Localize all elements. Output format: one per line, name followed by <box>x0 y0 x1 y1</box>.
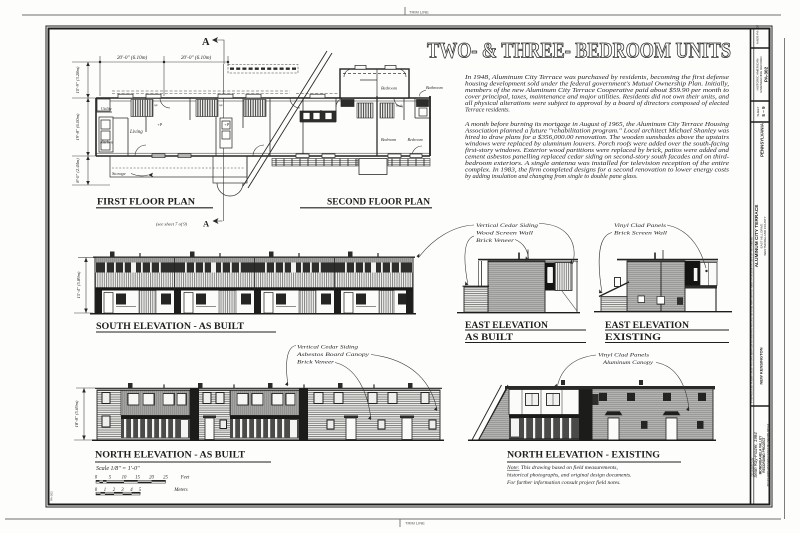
svg-text:WESTMORELAND COUNTY: WESTMORELAND COUNTY <box>763 216 767 255</box>
svg-text:20'-0" (6.10m): 20'-0" (6.10m) <box>117 54 148 61</box>
svg-text:25: 25 <box>163 476 168 481</box>
svg-text:Bedroom: Bedroom <box>381 86 397 91</box>
svg-text:NEW KENSINGTON: NEW KENSINGTON <box>759 347 764 384</box>
svg-text:NORTH ELEVATION - EXISTING: NORTH ELEVATION - EXISTING <box>507 451 661 461</box>
svg-text:Wood Screen Wall: Wood Screen Wall <box>476 231 534 237</box>
svg-text:5 – 9: 5 – 9 <box>761 106 766 117</box>
svg-text:Brick Veneer: Brick Veneer <box>476 238 515 244</box>
svg-text:Scale 1/8" = 1'-0": Scale 1/8" = 1'-0" <box>96 466 140 472</box>
svg-text:TRIM LINE: TRIM LINE <box>409 10 429 15</box>
svg-text:RECORDING PROJECT: RECORDING PROJECT <box>762 437 766 472</box>
svg-text:+P: +P <box>157 122 163 127</box>
svg-text:Kitchen: Kitchen <box>99 140 113 145</box>
svg-text:Vinyl Clad Panels: Vinyl Clad Panels <box>614 223 666 229</box>
svg-text:AS BUILT: AS BUILT <box>465 333 514 343</box>
svg-text:Terrace residents.: Terrace residents. <box>465 106 510 113</box>
svg-text:20: 20 <box>149 476 154 481</box>
svg-text:A: A <box>202 37 210 48</box>
svg-text:8'-0" (2.44m): 8'-0" (2.44m) <box>75 158 80 183</box>
svg-text:10'-9" (3.28m): 10'-9" (3.28m) <box>75 66 80 93</box>
svg-text:+P: +P <box>317 109 323 114</box>
svg-text:by adding insulation and chang: by adding insulation and changing from s… <box>465 173 638 180</box>
svg-text:TWO- & THREE- BEDROOM UNITS: TWO- & THREE- BEDROOM UNITS <box>427 38 731 63</box>
svg-text:Bath: Bath <box>396 104 403 108</box>
svg-text:A: A <box>203 219 210 229</box>
svg-text:historical photographs, and or: historical photographs, and original des… <box>507 473 631 479</box>
svg-text:Brick Screen Wall: Brick Screen Wall <box>614 231 668 237</box>
svg-text:Bedroom: Bedroom <box>408 137 423 142</box>
svg-text:SOUTH ELEVATION - AS BUILT: SOUTH ELEVATION - AS BUILT <box>96 322 245 332</box>
svg-text:EXISTING: EXISTING <box>605 333 662 343</box>
svg-text:EAST ELEVATION: EAST ELEVATION <box>465 321 548 331</box>
svg-text:Vertical Cedar Siding: Vertical Cedar Siding <box>297 345 359 351</box>
svg-text:IF REPRODUCED, PLEASE CREDIT H: IF REPRODUCED, PLEASE CREDIT HISTORIC AM… <box>751 237 754 404</box>
svg-text:0: 0 <box>95 476 98 481</box>
svg-text:Brick Veneer: Brick Veneer <box>297 360 335 366</box>
svg-text:Vinyl Clad Panels: Vinyl Clad Panels <box>598 353 649 359</box>
svg-text:For further information consul: For further information consult project … <box>506 479 621 486</box>
svg-text:5: 5 <box>109 476 112 481</box>
svg-text:20'-0" (6.10m): 20'-0" (6.10m) <box>181 54 212 61</box>
svg-text:NORTH ELEVATION - AS BUILT: NORTH ELEVATION - AS BUILT <box>95 451 246 461</box>
svg-text:FIRST FLOOR PLAN: FIRST FLOOR PLAN <box>97 198 195 208</box>
svg-text:+P: +P <box>224 122 230 127</box>
svg-text:SECOND FLOOR PLAN: SECOND FLOOR PLAN <box>327 198 430 208</box>
svg-text:TRIM LINE: TRIM LINE <box>405 521 425 526</box>
svg-text:10: 10 <box>122 476 127 481</box>
svg-text:Meters: Meters <box>173 488 187 493</box>
svg-text:Note: This drawing based on f: Note: This drawing based on field measur… <box>506 464 618 471</box>
svg-text:PA-302: PA-302 <box>50 491 54 501</box>
svg-text:SHEET: SHEET <box>756 106 760 116</box>
svg-text:Feet: Feet <box>180 476 190 481</box>
svg-text:HISTORIC AMERICAN BUILDINGS SU: HISTORIC AMERICAN BUILDINGS SURVEY NATIO… <box>766 423 769 486</box>
svg-text:Storage: Storage <box>112 171 126 176</box>
svg-text:up: up <box>219 103 223 107</box>
svg-text:Aluminum Canopy: Aluminum Canopy <box>602 360 654 366</box>
svg-text:Bedroom: Bedroom <box>381 137 396 142</box>
svg-text:PENNSYLVANIA: PENNSYLVANIA <box>760 122 765 157</box>
svg-text:EAST ELEVATION: EAST ELEVATION <box>605 321 689 331</box>
svg-text:Bathroom: Bathroom <box>426 85 443 90</box>
svg-text:HAER PA-302: HAER PA-302 <box>756 25 760 44</box>
svg-text:18'-8" (5.69m): 18'-8" (5.69m) <box>74 400 79 427</box>
svg-text:15: 15 <box>135 476 140 481</box>
svg-text:Vertical Cedar Siding: Vertical Cedar Siding <box>476 223 539 229</box>
svg-text:PA-302: PA-302 <box>763 66 768 82</box>
svg-text:Utility: Utility <box>101 106 112 111</box>
svg-text:Asbestos Board Canopy: Asbestos Board Canopy <box>296 352 370 358</box>
svg-text:Living: Living <box>129 130 143 135</box>
svg-text:19'-8" (6.00m): 19'-8" (6.00m) <box>75 113 80 140</box>
svg-text:DELINEATED BY: DELINEATED BY <box>752 457 755 476</box>
svg-text:15'-4" (5.89m): 15'-4" (5.89m) <box>76 271 81 298</box>
svg-text:Bath: Bath <box>343 104 350 108</box>
svg-text:(see sheet 7 of 9): (see sheet 7 of 9) <box>156 222 188 227</box>
svg-text:up: up <box>154 103 158 107</box>
